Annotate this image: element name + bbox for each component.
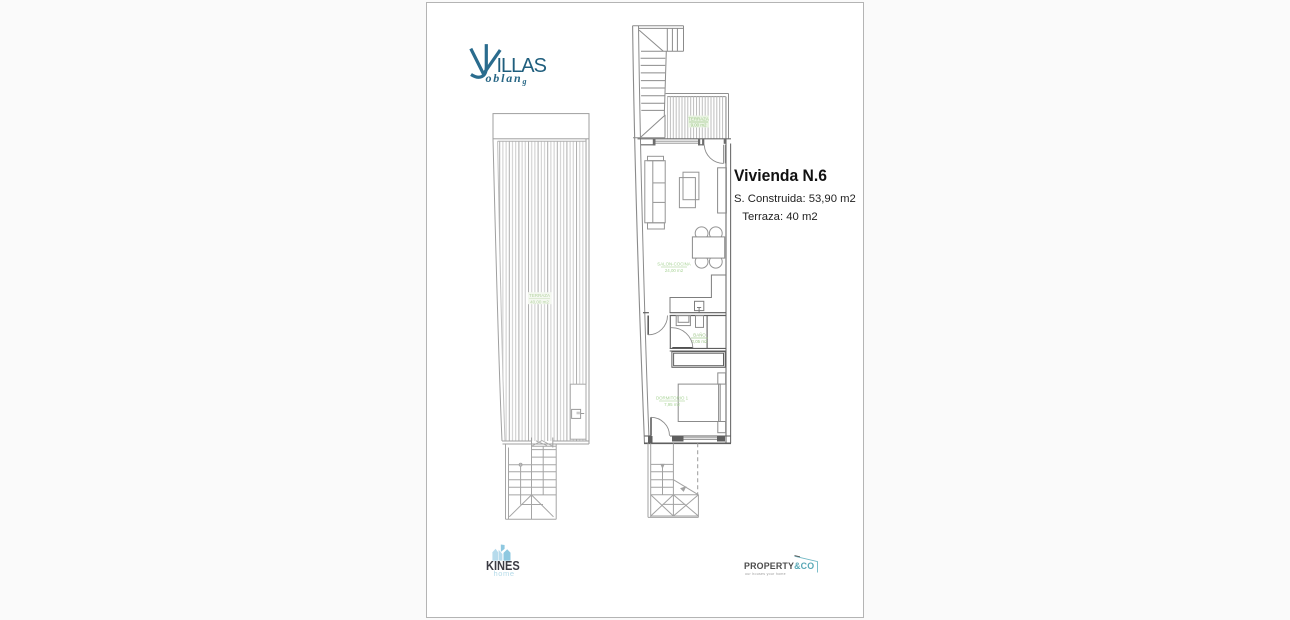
- svg-text:24,00 m2: 24,00 m2: [665, 268, 684, 273]
- svg-text:TERRAZA: TERRAZA: [529, 293, 550, 298]
- svg-text:BAÑO: BAÑO: [693, 333, 706, 338]
- svg-text:TERRAZA: TERRAZA: [688, 117, 709, 122]
- svg-text:2,05 m2: 2,05 m2: [692, 339, 708, 344]
- svg-text:9,00 m2: 9,00 m2: [691, 123, 707, 128]
- svg-text:DORMITORIO 1: DORMITORIO 1: [656, 396, 689, 401]
- svg-text:40,00 m2: 40,00 m2: [530, 300, 549, 305]
- svg-text:7,95 m2: 7,95 m2: [664, 402, 680, 407]
- svg-text:SALON-COCINA: SALON-COCINA: [657, 262, 690, 267]
